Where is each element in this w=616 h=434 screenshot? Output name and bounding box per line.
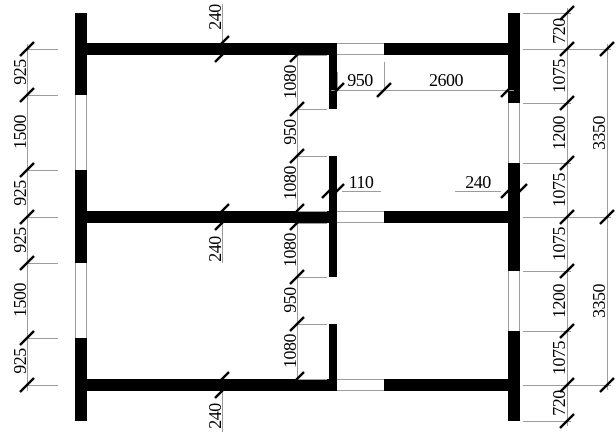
bottom-wall-segment bbox=[384, 379, 508, 391]
left-chain-dim-label: 925 bbox=[10, 348, 30, 374]
right-chain-dim-label: 720 bbox=[549, 18, 569, 44]
interior-chain-dim-label: 1080 bbox=[280, 334, 300, 369]
partition-wall-segment bbox=[329, 156, 337, 277]
interior-chain-dim-label: 1080 bbox=[280, 65, 300, 100]
right-wall-segment bbox=[508, 331, 520, 421]
top-dim-label: 950 bbox=[347, 70, 373, 90]
right-chain-dim-label: 1075 bbox=[549, 341, 569, 376]
top-dim-label: 2600 bbox=[429, 70, 464, 90]
left-chain-dim-label: 1500 bbox=[10, 115, 30, 150]
floor-plan-drawing: 925 1500 925 925 1500 925 1080 950 1080 … bbox=[0, 0, 616, 434]
interior-chain-dim-label: 950 bbox=[280, 287, 300, 313]
top-wall-thickness-label: 240 bbox=[205, 4, 225, 30]
left-chain-dim-label: 925 bbox=[10, 180, 30, 206]
bottom-wall-segment bbox=[75, 379, 337, 391]
right-overall-dim-label: 3350 bbox=[589, 284, 609, 319]
top-wall-segment bbox=[384, 43, 508, 55]
right-chain-dim-label: 1075 bbox=[549, 59, 569, 94]
bottom-wall-thickness-label: 240 bbox=[205, 403, 225, 429]
partition-wall-segment bbox=[329, 324, 337, 391]
left-chain-dim-label: 1500 bbox=[10, 283, 30, 318]
partition-wall-segment bbox=[329, 43, 337, 109]
right-chain-dim-label: 1075 bbox=[549, 173, 569, 208]
right-chain-dim-label: 1075 bbox=[549, 227, 569, 262]
right-wall-thickness-label: 240 bbox=[465, 172, 491, 192]
left-chain-dim-label: 925 bbox=[10, 59, 30, 85]
middle-wall-segment bbox=[384, 211, 508, 223]
left-chain-dim-label: 925 bbox=[10, 227, 30, 253]
middle-wall-thickness-label: 240 bbox=[205, 236, 225, 262]
partition-thickness-label: 110 bbox=[349, 172, 374, 192]
right-overall-dim-label: 3350 bbox=[589, 116, 609, 151]
interior-chain-dim-label: 950 bbox=[280, 119, 300, 145]
right-chain-dim-label: 1200 bbox=[549, 116, 569, 151]
interior-chain-dim-label: 1080 bbox=[280, 233, 300, 268]
interior-chain-dim-label: 1080 bbox=[280, 166, 300, 201]
floor-plan-canvas: 925 1500 925 925 1500 925 1080 950 1080 … bbox=[0, 0, 616, 434]
right-chain-dim-label: 720 bbox=[549, 390, 569, 416]
right-chain-dim-label: 1200 bbox=[549, 284, 569, 319]
right-wall-segment bbox=[508, 163, 520, 271]
